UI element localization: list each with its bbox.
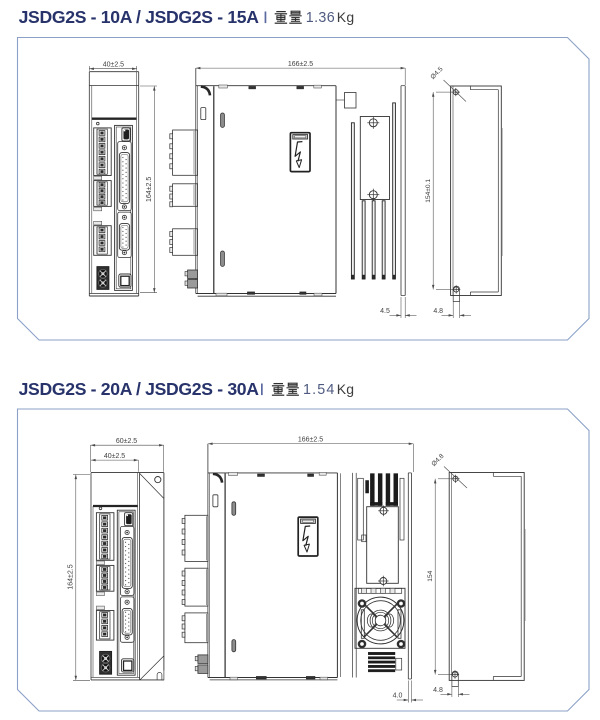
svg-text:154: 154: [427, 570, 434, 581]
svg-text:40±2.5: 40±2.5: [103, 62, 124, 69]
svg-text:166±2.5: 166±2.5: [288, 61, 313, 68]
svg-text:154±0.1: 154±0.1: [425, 179, 432, 203]
svg-text:164±2.5: 164±2.5: [67, 564, 74, 589]
svg-text:Ø4.8: Ø4.8: [430, 453, 445, 468]
svg-text:60±2.5: 60±2.5: [116, 438, 137, 445]
svg-text:4.5: 4.5: [380, 308, 390, 315]
svg-text:4.8: 4.8: [433, 308, 443, 315]
svg-text:40±2.5: 40±2.5: [104, 453, 125, 460]
svg-text:4.8: 4.8: [433, 687, 443, 694]
svg-text:166±2.5: 166±2.5: [298, 437, 323, 444]
svg-text:Ø4.5: Ø4.5: [429, 66, 444, 81]
svg-text:4.0: 4.0: [393, 692, 403, 699]
svg-text:164±2.5: 164±2.5: [146, 177, 153, 202]
